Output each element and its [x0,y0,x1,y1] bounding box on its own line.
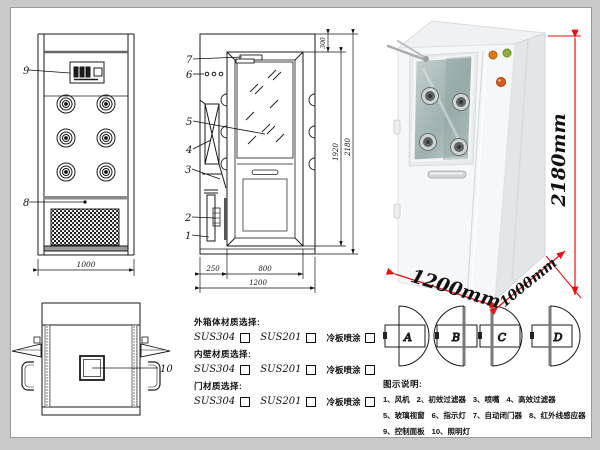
door-option-d: D [530,306,580,366]
door-option-diagrams: A B C D [378,298,592,378]
photo-dim-height: 2180mm [548,113,570,207]
material-options-row: SUS304 SUS201 冷板喷涂 [194,363,382,376]
part-label-3: 3 [185,165,191,176]
door-glass [237,62,293,158]
sus304-checkbox[interactable] [240,333,250,343]
svg-text:D: D [553,331,563,344]
option-coldplate: 冷板喷涂 [326,332,360,344]
base-band [44,246,128,251]
sus201-checkbox[interactable] [306,397,316,407]
orange-light [489,51,497,59]
dim-300: 300 [320,37,327,49]
sus201-checkbox[interactable] [306,333,316,343]
door-hinge [394,120,400,134]
side-handles [22,362,160,390]
red-button[interactable] [497,78,506,87]
material-group-title: 门材质选择: [194,380,382,392]
svg-text:B: B [451,331,460,344]
door-handle [428,171,466,178]
part-label-4: 4 [185,145,192,156]
top-view-drawing: 10 [10,293,190,433]
legend-item: 6、指示灯 [432,410,466,421]
control-panel [70,62,104,83]
product-photo: 2180mm 1200mm 1000mm [368,8,596,310]
spec-sheet: 9 8 1000 [0,0,600,450]
door-vent-slot [252,170,278,175]
fan-unit [200,100,226,188]
indicator-lights [205,72,223,76]
legend-item: 2、初效过滤器 [417,394,466,405]
coldplate-checkbox[interactable] [365,397,375,407]
legend-row: 5、玻璃视窗 6、指示灯 7、自动闭门器 8、红外线感应器 [383,410,589,421]
glass-hatch [246,70,284,144]
legend: 图示说明: 1、风机 2、初效过滤器 3、喷嘴 4、高效过滤器 5、玻璃视窗 6… [383,378,589,442]
legend-item: 3、喷嘴 [473,394,500,405]
material-group-title: 内壁材质选择: [194,348,382,360]
option-sus201: SUS201 [260,396,301,407]
option-coldplate: 冷板喷涂 [326,396,360,408]
part-label-7: 7 [186,55,193,66]
part-label-6: 6 [186,70,193,81]
dim-250: 250 [205,265,220,273]
option-sus304: SUS304 [194,332,235,343]
part-label-9: 9 [23,66,30,77]
material-options-row: SUS304 SUS201 冷板喷涂 [194,331,382,344]
legend-item: 8、红外线感应器 [529,410,586,421]
sus304-checkbox[interactable] [240,397,250,407]
dim-1200: 1200 [249,279,267,287]
legend-item: 10、照明灯 [432,426,470,437]
door-swing-wings [12,344,170,357]
dim-2180: 2180 [344,138,352,157]
side-view-drawing: 7 6 5 4 3 2 1 300 1920 2180 250 [180,12,365,304]
part-label-1: 1 [185,231,191,242]
legend-row: 9、控制面板 10、照明灯 [383,426,589,437]
door-option-a: A [383,306,429,366]
legend-item: 1、风机 [383,394,410,405]
door-option-b: B [434,306,477,366]
legend-row: 1、风机 2、初效过滤器 3、喷嘴 4、高效过滤器 [383,394,589,405]
sus304-checkbox[interactable] [240,365,250,375]
material-options-row: SUS304 SUS201 冷板喷涂 [194,395,382,408]
door-option-c: C [478,306,522,366]
return-grille [51,209,119,245]
sus201-checkbox[interactable] [306,365,316,375]
nozzle-array [57,95,115,181]
option-sus304: SUS304 [194,364,235,375]
part-label-8: 8 [23,198,29,209]
coldplate-checkbox[interactable] [365,365,375,375]
green-light [503,49,511,57]
legend-item: 4、高效过滤器 [507,394,556,405]
part-label-2: 2 [184,213,191,224]
filter-pipe-assembly [202,174,227,241]
option-coldplate: 冷板喷涂 [326,364,360,376]
option-sus201: SUS201 [260,332,301,343]
material-group-title: 外箱体材质选择: [194,316,382,328]
door-hinge [394,204,400,218]
material-selection: 外箱体材质选择: SUS304 SUS201 冷板喷涂 内壁材质选择: SUS3… [194,312,382,411]
coldplate-checkbox[interactable] [365,333,375,343]
option-sus304: SUS304 [194,396,235,407]
legend-title: 图示说明: [383,378,589,390]
divider-band [44,196,128,200]
front-view-cabinet [38,34,134,255]
legend-item: 7、自动闭门器 [473,410,522,421]
dim-800: 800 [258,265,272,273]
svg-text:C: C [498,331,507,344]
side-view-structure [200,34,315,254]
top-view-structure [12,303,170,415]
svg-text:A: A [403,331,412,344]
part-label-5: 5 [186,117,192,128]
legend-item: 9、控制面板 [383,426,425,437]
part-label-10: 10 [160,364,173,375]
option-sus201: SUS201 [260,364,301,375]
door-section [227,52,303,246]
legend-item: 5、玻璃视窗 [383,410,425,421]
dim-1000: 1000 [76,260,95,269]
front-view-drawing: 9 8 1000 [18,12,183,297]
side-view-leaders [192,57,265,237]
dim-1920: 1920 [332,143,340,161]
